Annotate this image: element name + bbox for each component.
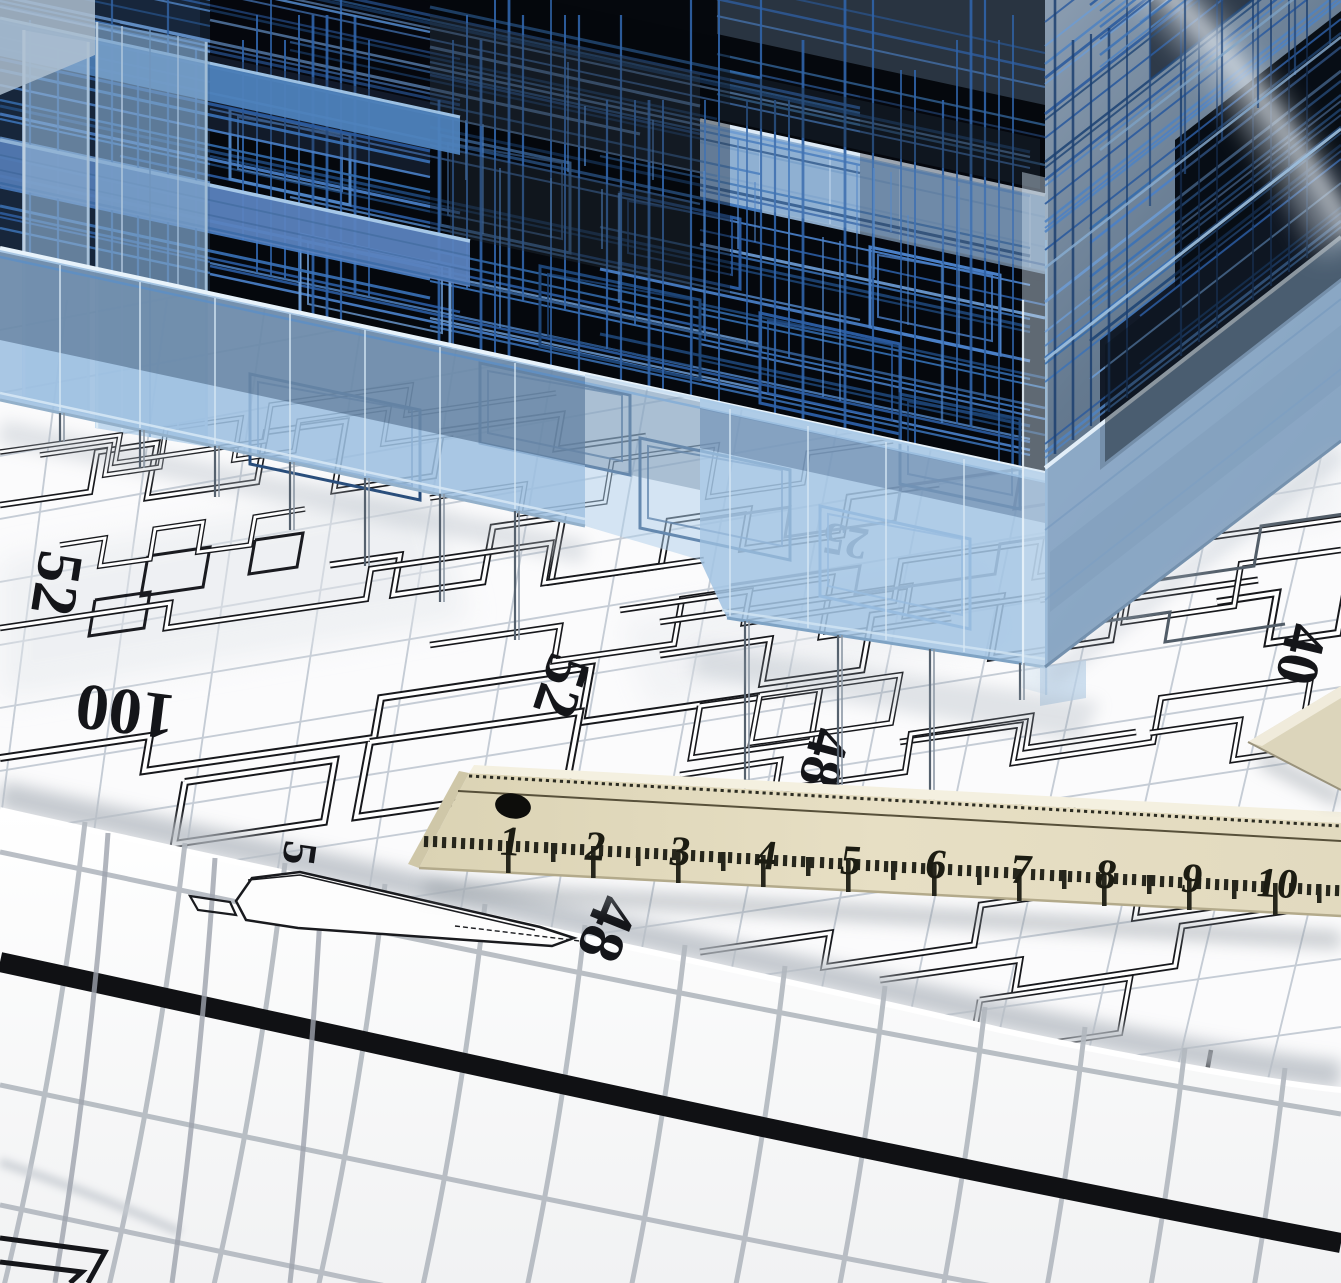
svg-text:100: 100 <box>72 669 179 754</box>
svg-text:10: 10 <box>1252 859 1301 908</box>
svg-text:52: 52 <box>17 546 97 620</box>
